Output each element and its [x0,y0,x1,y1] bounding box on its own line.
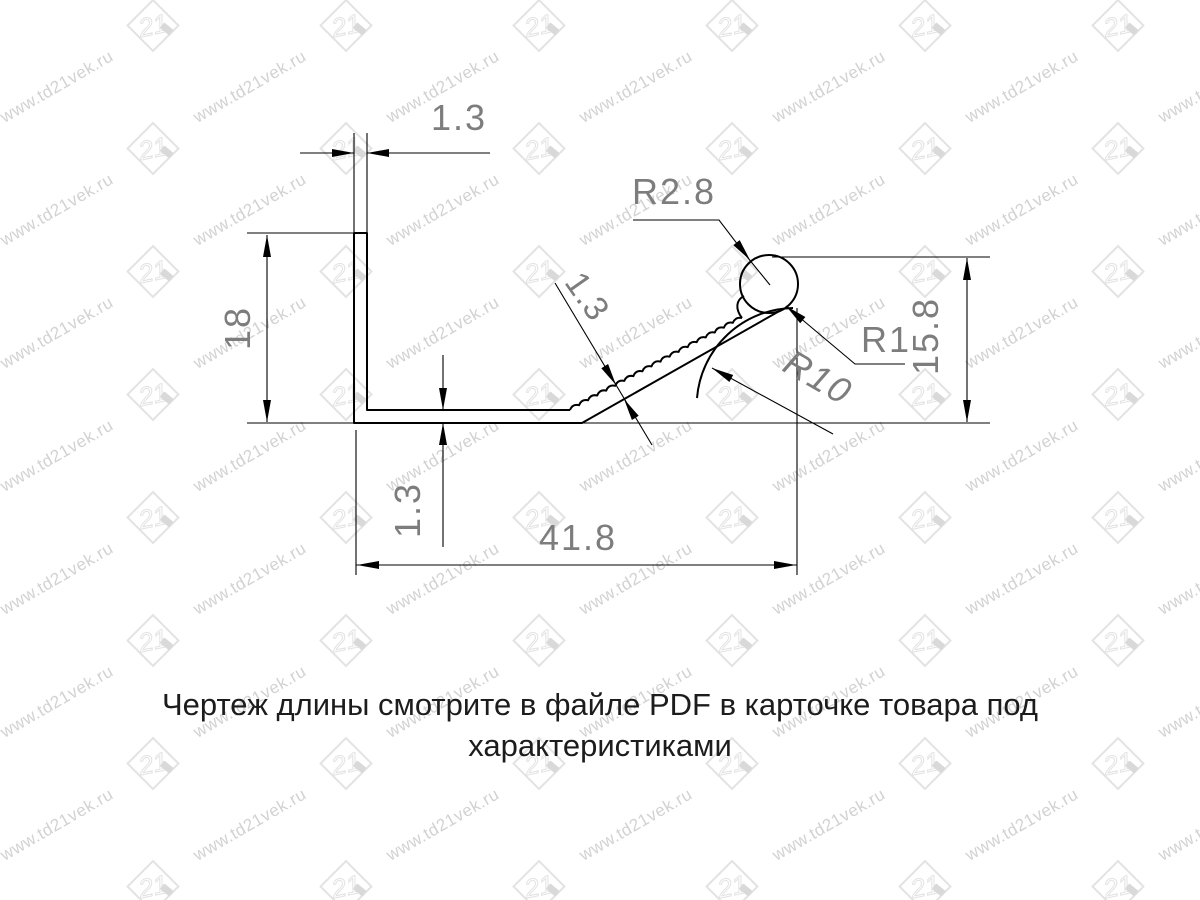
arrow-up-icon [439,423,447,445]
dim-label-bulb-radius: R2.8 [632,171,716,212]
arrow-right-icon [774,561,796,569]
callout-large-fillet: R10 [712,341,860,434]
arrow-down-right-icon [601,364,616,385]
dim-label-incline-thickness: 1.3 [557,265,617,328]
arrow-up-icon [263,235,271,257]
arrow-left-icon [367,149,389,157]
caption-line-1: Чертеж длины смотрите в файле PDF в карт… [0,684,1200,725]
arrow-up-left-icon [624,399,639,420]
dim-label-wall-thickness: 1.3 [431,97,487,138]
dim-label-wall-height: 18 [217,306,258,350]
dim-wall-thickness: 1.3 [300,97,490,157]
dim-wall-height: 18 [217,235,271,422]
arrow-down-icon [263,400,271,422]
dim-right-height: 15.8 [905,258,971,422]
r10-fillet-arc [697,308,793,398]
dim-label-right-height: 15.8 [905,297,946,375]
dim-label-large-fillet: R10 [777,341,860,413]
product-drawing-page: 21www.td21vek.ru21www.td21vek.ru21www.td… [0,0,1200,900]
dim-flange-thickness: 1.3 [387,355,447,547]
caption-line-2: характеристиками [0,725,1200,766]
arrow-down-icon [439,388,447,410]
dim-label-small-fillet: R1 [861,319,911,360]
profile-wall-inner [367,233,570,410]
callout-bulb-radius: R2.8 [632,171,770,285]
arrow-up-left-icon [786,306,805,323]
dim-label-flange-thickness: 1.3 [387,482,428,538]
arrow-up-icon [963,258,971,280]
dim-incline-thickness: 1.3 [555,265,652,445]
arrow-up-left-icon [712,368,733,382]
arrow-left-icon [357,561,379,569]
profile-outline [354,233,798,423]
dim-label-total-width: 41.8 [539,517,617,558]
arrow-down-icon [963,400,971,422]
serrated-edge [570,318,742,410]
bulb-neck [737,296,744,318]
arrow-right-icon [332,149,354,157]
drawing-caption: Чертеж длины смотрите в файле PDF в карт… [0,684,1200,766]
arrow-down-right-icon [733,240,750,260]
